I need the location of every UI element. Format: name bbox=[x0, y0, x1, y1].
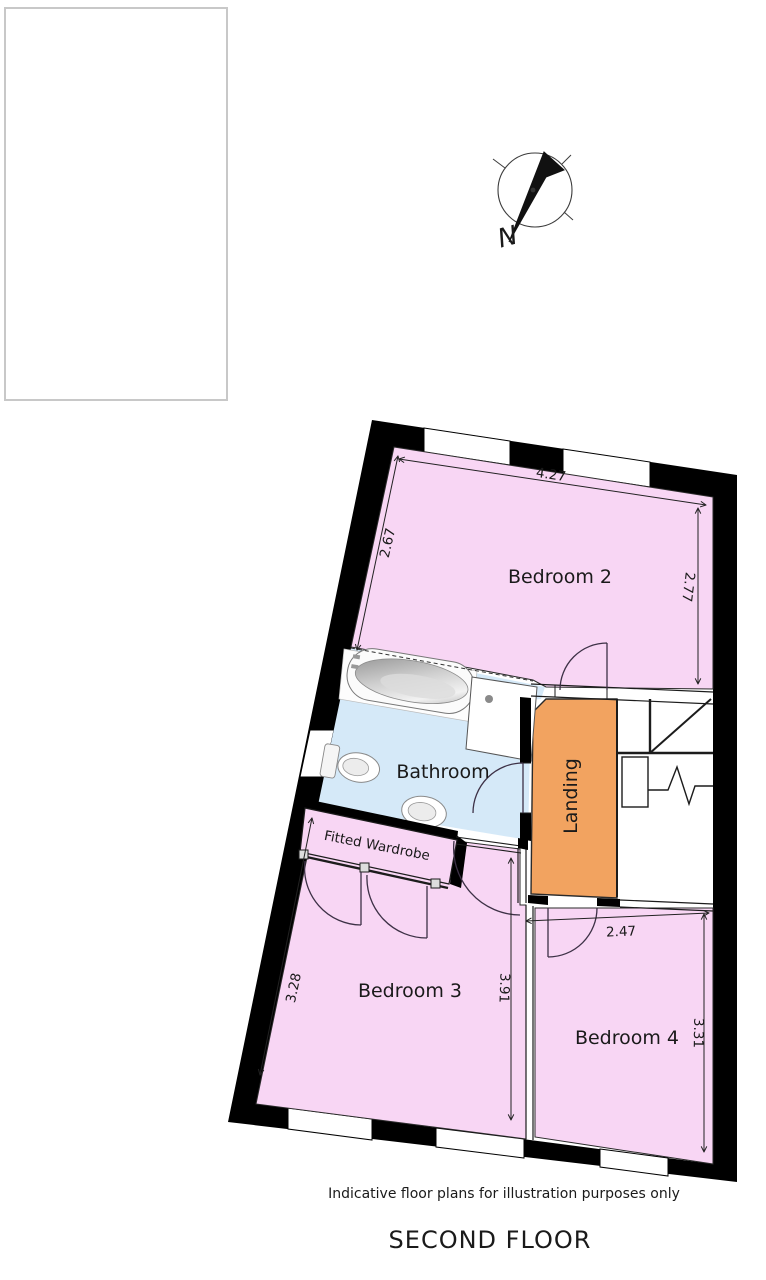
dim-bedroom4-right: 3.31 bbox=[690, 1018, 707, 1048]
compass-rose: N bbox=[493, 152, 573, 254]
label-bedroom4: Bedroom 4 bbox=[575, 1027, 679, 1049]
stair-newel bbox=[622, 757, 648, 807]
compass-tick-se bbox=[564, 212, 573, 220]
floorplan-page: N bbox=[0, 0, 766, 1280]
wardrobe-pivot bbox=[431, 879, 440, 888]
label-bedroom2: Bedroom 2 bbox=[508, 566, 612, 588]
compass-center-dot bbox=[531, 188, 536, 193]
label-bedroom3: Bedroom 3 bbox=[358, 980, 462, 1002]
shower-head-icon bbox=[485, 695, 493, 703]
compass-needle-icon bbox=[509, 152, 564, 242]
compass-tick-ne bbox=[562, 155, 571, 164]
compass-tick-nw bbox=[493, 159, 505, 168]
floor-title: SECOND FLOOR bbox=[389, 1226, 592, 1254]
empty-plan-placeholder bbox=[5, 8, 227, 400]
label-bathroom: Bathroom bbox=[396, 761, 489, 783]
staircase bbox=[617, 699, 713, 897]
wardrobe-pivot bbox=[360, 863, 369, 872]
stair-break-line bbox=[648, 767, 713, 804]
disclaimer-text: Indicative floor plans for illustration … bbox=[328, 1186, 680, 1202]
dim-bedroom4-width: 2.47 bbox=[606, 923, 637, 940]
floorplan-canvas: N bbox=[0, 0, 766, 1280]
label-landing: Landing bbox=[560, 758, 582, 834]
dim-bedroom3-right: 3.91 bbox=[495, 973, 512, 1004]
